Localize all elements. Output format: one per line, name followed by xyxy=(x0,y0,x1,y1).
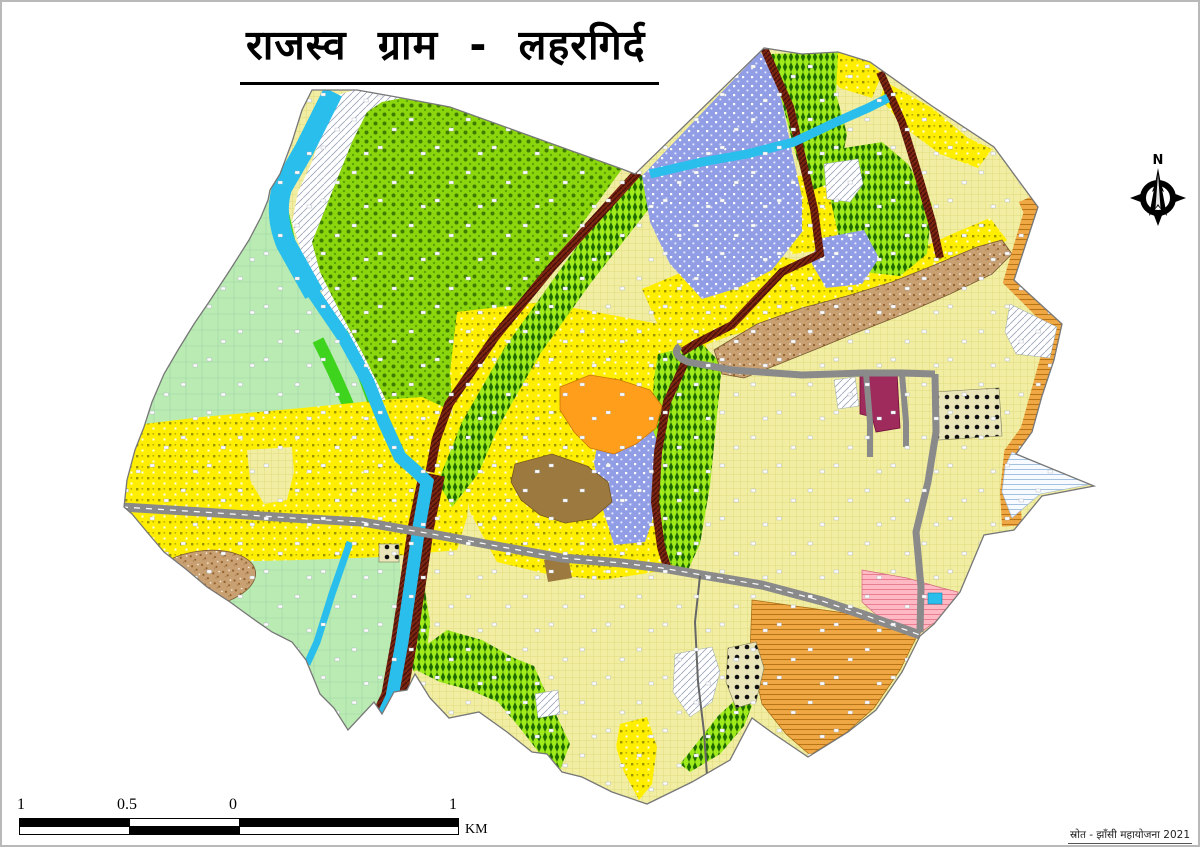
page-title: राजस्व ग्राम - लहरगिर्द xyxy=(240,16,659,85)
compass-rose: N xyxy=(1126,150,1190,234)
scale-segment xyxy=(20,819,130,826)
scale-bar: 1 0.5 0 1 KM xyxy=(17,796,497,842)
scale-label: 0 xyxy=(229,796,237,814)
scale-segment xyxy=(130,827,240,834)
land-use-layers xyxy=(102,32,1122,822)
north-label: N xyxy=(1153,153,1164,168)
scale-segment xyxy=(240,819,458,826)
parcel-labels xyxy=(102,32,1122,822)
north-arrow-icon xyxy=(1130,168,1186,226)
scale-label: 1 xyxy=(17,796,25,814)
scale-label: 1 xyxy=(449,796,457,814)
scale-segment xyxy=(130,819,240,826)
scale-bar-graphic xyxy=(19,818,459,835)
scale-unit: KM xyxy=(465,822,488,838)
map-sheet: राजस्व ग्राम - लहरगिर्द xyxy=(0,0,1200,847)
source-note: स्रोत - झाँसी महायोजना 2021 xyxy=(1068,828,1192,844)
scale-labels: 1 0.5 0 1 xyxy=(17,796,497,816)
scale-segment xyxy=(240,827,458,834)
village-map xyxy=(2,2,1200,847)
scale-label: 0.5 xyxy=(117,796,137,814)
scale-segment xyxy=(20,827,130,834)
